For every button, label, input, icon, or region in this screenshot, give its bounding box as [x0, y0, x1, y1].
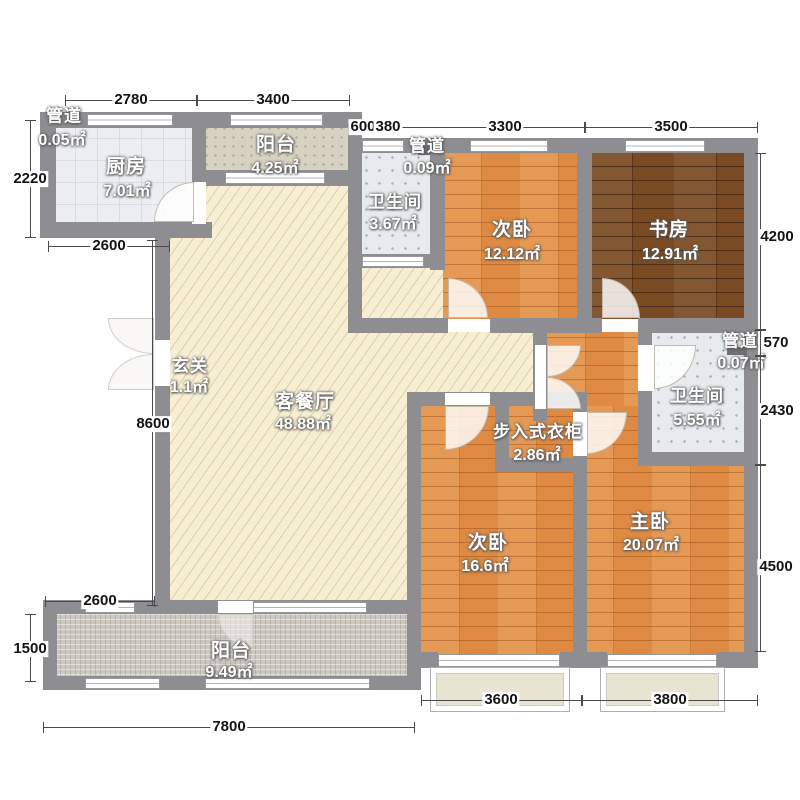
dim-label-right-4200: 4200	[758, 229, 795, 245]
room-area-bathroom-top: 3.67㎡	[369, 210, 416, 234]
door-arc-entry-lower	[108, 354, 154, 390]
dim-label-bottom-7800: 7800	[210, 719, 247, 735]
window	[230, 114, 323, 126]
room-label-study: 书房	[649, 215, 689, 242]
room-area-bedroom2-top: 12.12㎡	[484, 240, 540, 264]
room-label-bathroom-right: 卫生间	[670, 382, 724, 407]
window	[85, 678, 160, 689]
room-area-living-dining: 48.88㎡	[275, 410, 331, 434]
corridor-door-opening	[535, 345, 546, 409]
dim-label-top-380: 380	[373, 119, 402, 135]
dim-label-right-2430: 2430	[758, 403, 795, 419]
wall	[348, 318, 448, 333]
bathroom-right-door-opening	[638, 345, 654, 391]
dim-label-top-2780: 2780	[112, 92, 149, 108]
bedroom2-bottom-door-opening	[445, 393, 490, 405]
room-area-master-bedroom: 20.07㎡	[623, 531, 679, 555]
dim-label-inner-2600-balcony: 2600	[81, 593, 118, 609]
dim-label-top-3300: 3300	[486, 119, 523, 135]
wall	[717, 652, 744, 668]
room-area-balcony-bottom: 9.49㎡	[205, 658, 252, 682]
dim-label-left-1500: 1500	[11, 641, 48, 657]
room-label-balcony-top: 阳台	[256, 130, 296, 157]
dim-label-inner-2600-kitchen: 2600	[90, 238, 127, 254]
room-area-kitchen: 7.01㎡	[103, 177, 150, 201]
window-sliding-door	[362, 256, 424, 267]
room-label-duct-right: 管道	[722, 327, 758, 352]
kitchen-door-opening	[192, 182, 206, 224]
room-area-entry: 1.1㎡	[170, 373, 208, 397]
room-area-bathroom-right: 5.55㎡	[673, 406, 720, 430]
door-arc-entry-upper	[108, 318, 154, 354]
dim-label-left-8600: 8600	[134, 416, 171, 432]
wall	[490, 318, 602, 333]
wall	[638, 452, 746, 466]
window	[362, 140, 404, 152]
room-label-master-bedroom: 主卧	[630, 507, 670, 534]
bay-window-strip	[607, 654, 717, 667]
floorplan-canvas: 管道 0.05㎡ 厨房 7.01㎡ 阳台 4.25㎡ 卫生间 3.67㎡ 管道 …	[0, 0, 800, 800]
wall	[744, 138, 758, 668]
room-area-bedroom2-bottom: 16.6㎡	[461, 552, 508, 576]
dim-label-left-2220: 2220	[11, 171, 48, 187]
dim-label-bottom-3800: 3800	[651, 692, 688, 708]
wall	[560, 652, 607, 668]
room-area-duct-right: 0.07㎡	[717, 349, 764, 373]
wall	[407, 392, 421, 690]
dim-label-bottom-3600: 3600	[482, 692, 519, 708]
entry-door-opening	[155, 340, 170, 386]
room-label-kitchen: 厨房	[106, 152, 146, 179]
dim-label-right-570: 570	[761, 335, 790, 351]
room-label-duct-top-left: 管道	[46, 102, 82, 127]
room-label-duct-top: 管道	[409, 132, 445, 157]
window	[87, 114, 173, 126]
wall	[40, 222, 212, 238]
room-area-walkin-closet: 2.86㎡	[513, 441, 560, 465]
room-area-duct-top: 0.09㎡	[403, 154, 450, 178]
room-label-walkin-closet: 步入式衣柜	[493, 418, 583, 443]
window	[253, 602, 367, 613]
room-label-bathroom-top: 卫生间	[368, 188, 422, 213]
study-door-opening	[602, 319, 638, 332]
room-area-study: 12.91㎡	[642, 240, 698, 264]
room-area-balcony-top: 4.25㎡	[251, 154, 298, 178]
wall	[407, 652, 438, 668]
wall	[577, 138, 592, 333]
room-area-duct-top-left: 0.05㎡	[38, 126, 85, 150]
room-label-bedroom2-top: 次卧	[492, 215, 532, 242]
bedroom2-top-door-opening	[448, 319, 490, 332]
dim-label-top-3400: 3400	[254, 92, 291, 108]
window	[470, 140, 548, 152]
dim-label-right-4500: 4500	[757, 559, 794, 575]
balcony-door-opening	[218, 601, 253, 613]
bay-window-strip	[438, 654, 560, 667]
dim-label-top-3500: 3500	[652, 119, 689, 135]
window	[625, 140, 705, 152]
room-label-bedroom2-bottom: 次卧	[468, 528, 508, 555]
